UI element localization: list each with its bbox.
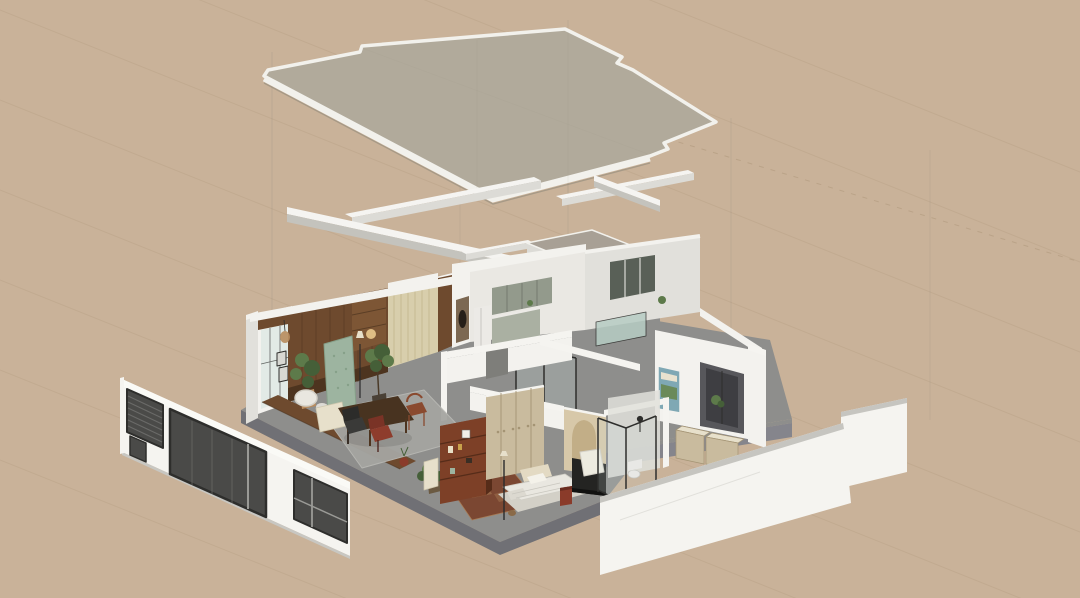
bathroom-right-cap: [663, 397, 669, 468]
viewport: [0, 0, 1080, 598]
boucle-lounge-chair: [295, 390, 317, 406]
entry-low-cabinet: [424, 458, 438, 490]
wall-lamp-glow: [366, 329, 376, 339]
dog-figurine: [508, 510, 516, 516]
study-plant: [658, 296, 666, 304]
wardrobe: [486, 386, 544, 480]
window-wall-left-cap: [120, 377, 124, 454]
red-bookshelf: [440, 417, 492, 504]
left-end-wall-outer: [246, 314, 258, 424]
kitchen-plant: [527, 300, 533, 306]
red-planter: [560, 486, 572, 506]
right-outer-wall: [748, 348, 766, 448]
oval-art-motif: [459, 310, 467, 328]
exploded-apartment-render: [0, 0, 1080, 598]
